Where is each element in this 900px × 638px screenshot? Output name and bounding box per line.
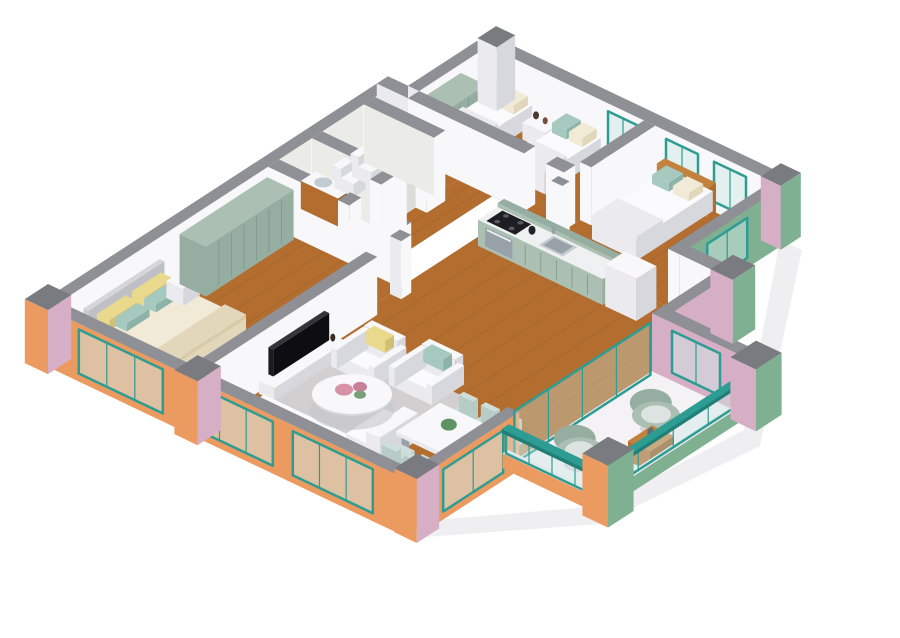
pillar-wing-s-sw-face xyxy=(710,269,732,344)
kitchen-burner-3 xyxy=(509,227,515,231)
kids-nightstand-vase xyxy=(533,111,539,119)
kitchen-kettle xyxy=(529,226,536,235)
armchair-2-arm-a-sw-face xyxy=(389,366,395,388)
armchair-2-arm-b-sw-face xyxy=(426,384,432,406)
coffee-flowers-1 xyxy=(335,384,353,396)
pillar-west-sw-face xyxy=(25,299,48,374)
floorplan-svg xyxy=(0,0,900,638)
master-wardrobe-groove xyxy=(269,208,270,253)
master-wardrobe-groove xyxy=(244,225,245,270)
master-wardrobe-groove xyxy=(219,241,220,286)
kitchen-counter-groove xyxy=(525,245,526,265)
wall-kids-teen-divider-b-sw-face xyxy=(580,162,591,225)
wall-bath-se-a-sw-face xyxy=(338,200,349,263)
kitchen-counter-groove xyxy=(572,267,573,287)
wall-bath-se-a-se-face xyxy=(349,198,361,264)
pillar-balcony-south-sw-face xyxy=(582,453,608,527)
wall-bath-se-b-sw-face xyxy=(370,179,381,242)
balcony-chair-2-cushion xyxy=(641,405,671,423)
tv-console-decor xyxy=(330,334,335,342)
kitchen-counter-groove xyxy=(556,260,557,280)
armchair-1-arm-a-sw-face xyxy=(331,347,337,369)
master-wardrobe-groove xyxy=(281,200,282,245)
pillar-north-sw-face xyxy=(478,38,497,111)
coffee-flowers-leaves xyxy=(354,391,366,399)
pillar-balcony-east-sw-face xyxy=(730,357,756,431)
coffee-table-top xyxy=(312,374,392,414)
floorplan-image xyxy=(0,0,900,638)
master-wardrobe-groove xyxy=(231,233,232,277)
pillar-sw-balcony-sw-face xyxy=(394,468,416,543)
wall-wc-corridor-se-face xyxy=(434,130,445,195)
coffee-flowers-2 xyxy=(353,382,367,392)
kitchen-faucet xyxy=(552,226,556,234)
dining-plant xyxy=(441,419,457,431)
kitchen-burner-2 xyxy=(503,214,509,218)
kitchen-counter-groove xyxy=(540,252,541,272)
kitchen-burner-1 xyxy=(494,220,500,224)
bath-sink-basin xyxy=(314,177,332,187)
pillar-east-se-face xyxy=(781,173,801,250)
kitchen-counter-groove xyxy=(587,275,588,295)
wall-kids-sw-a-se-face xyxy=(524,146,535,211)
kids-nightstand-vase-2 xyxy=(543,117,548,124)
tv-screen-sw-face xyxy=(268,347,273,376)
kitchen-burner-4 xyxy=(517,221,523,225)
master-wardrobe-groove xyxy=(256,217,257,262)
pillar-sw-mid-sw-face xyxy=(174,370,197,445)
wall-master-se-b-sw-face xyxy=(390,236,401,299)
pillar-east-sw-face xyxy=(761,176,781,250)
wall-master-se-b-se-face xyxy=(401,235,411,299)
pillar-north-se-face xyxy=(497,35,515,111)
